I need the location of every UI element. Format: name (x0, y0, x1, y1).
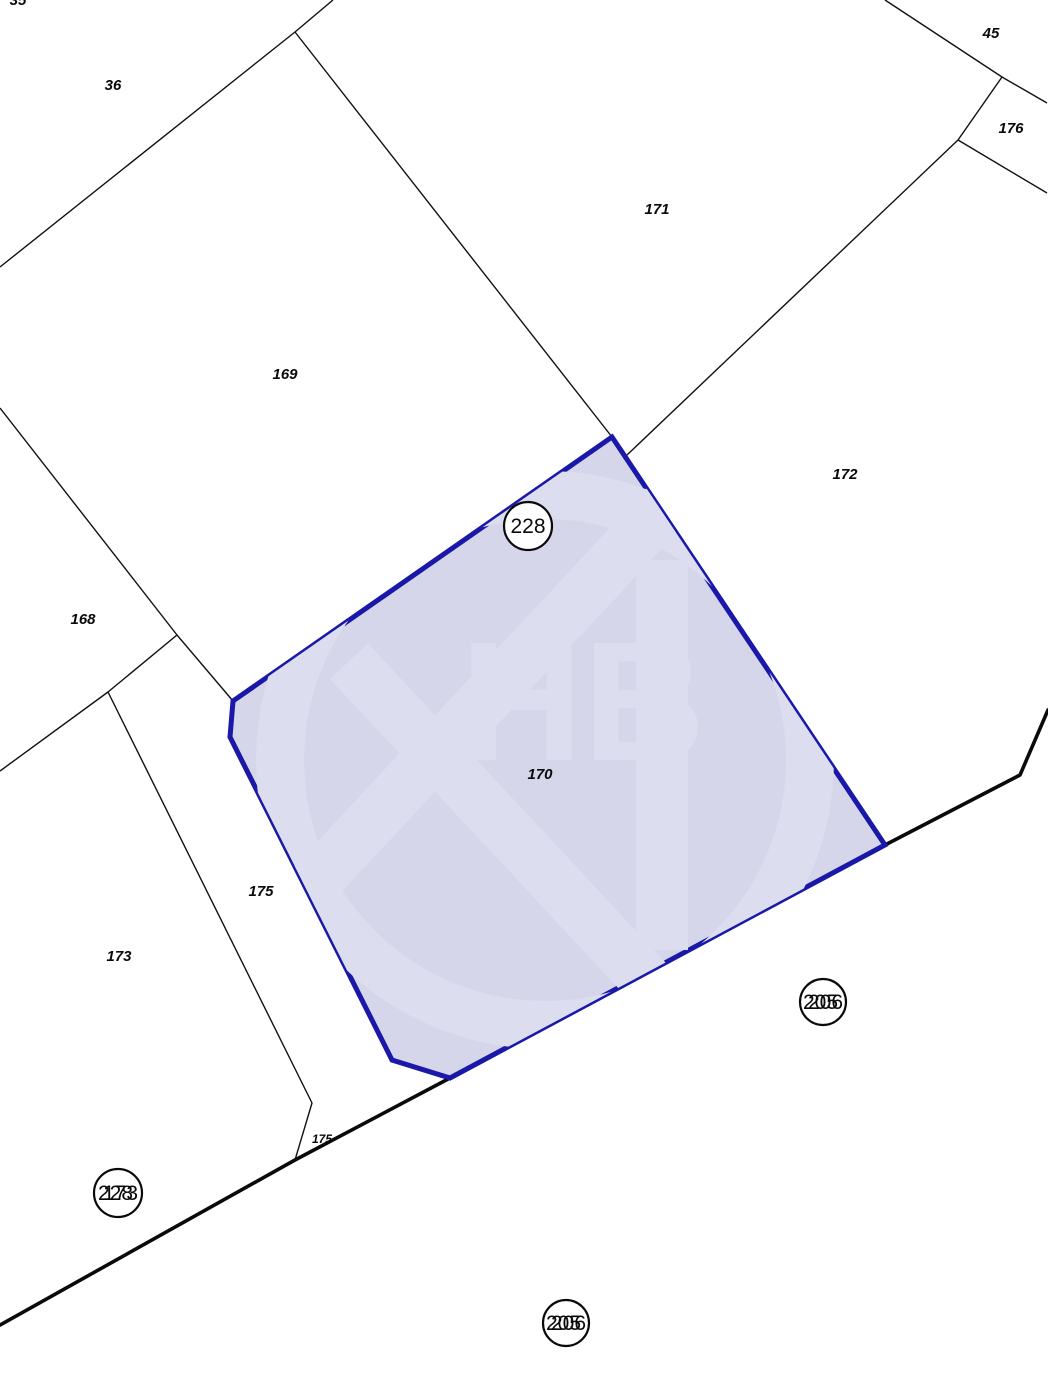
point-label-text: 173 (103, 1182, 138, 1205)
point-label-text: 206 (808, 991, 843, 1014)
parcel-number-label: 168 (70, 611, 96, 628)
parcel-number-label-170: 170 (527, 766, 553, 783)
point-label-228-173: 228173 (94, 1169, 142, 1217)
parcel-number-label: 45 (982, 25, 1000, 42)
parcel-number-label: 171 (644, 201, 669, 218)
parcel-number-label: 35 (10, 0, 27, 9)
cadastral-map-canvas[interactable]: HB35364517617116917216817517317517022820… (0, 0, 1048, 1384)
parcel-number-label: 169 (272, 366, 298, 383)
watermark-letters: HB (460, 607, 706, 797)
point-label-text: 228 (510, 515, 545, 538)
parcel-number-label: 36 (105, 77, 122, 94)
point-label-205-206: 205206 (543, 1300, 589, 1346)
parcel-number-label: 175 (248, 883, 274, 900)
parcel-number-label: 175 (312, 1132, 332, 1146)
parcel-number-label: 176 (998, 120, 1024, 137)
point-label-228: 228 (504, 502, 552, 550)
parcel-number-label: 173 (106, 948, 132, 965)
point-label-205-206: 205206 (800, 979, 846, 1025)
parcel-number-label: 172 (832, 466, 858, 483)
cadastral-map: HB35364517617116917216817517317517022820… (0, 0, 1048, 1384)
point-label-text: 206 (551, 1312, 586, 1335)
